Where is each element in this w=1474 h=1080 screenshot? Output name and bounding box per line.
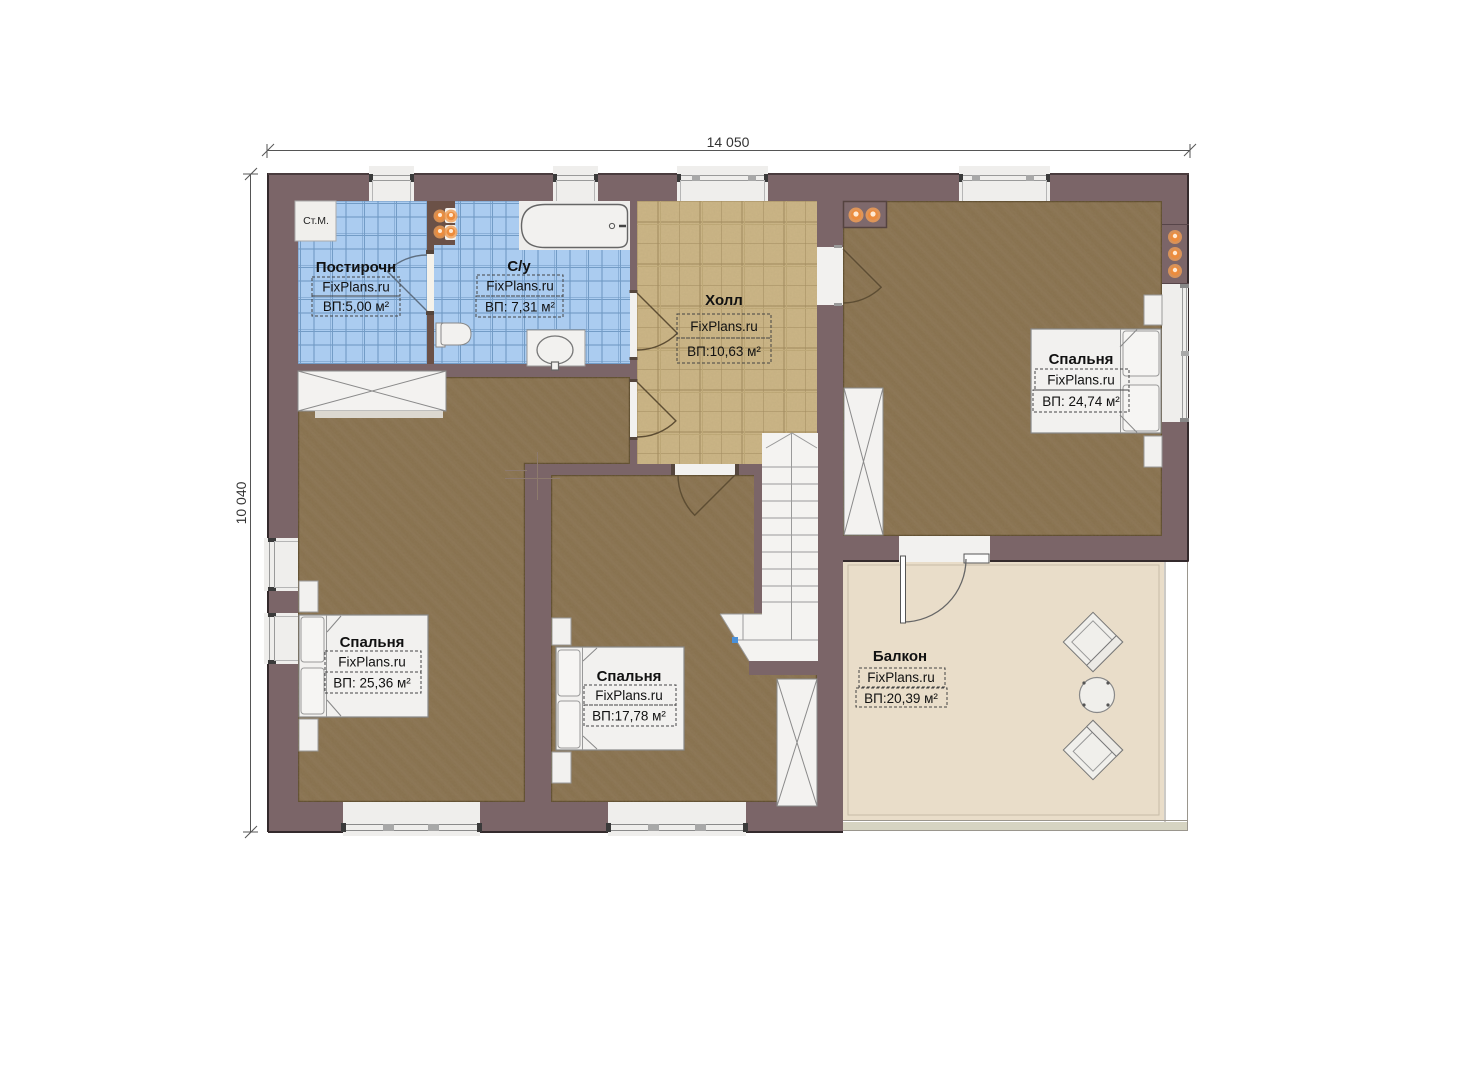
svg-text:ВП: 25,36 м²: ВП: 25,36 м² <box>333 676 411 691</box>
svg-text:ВП:20,39 м²: ВП:20,39 м² <box>864 691 938 706</box>
svg-text:FixPlans.ru: FixPlans.ru <box>486 279 554 294</box>
svg-text:Ст.М.: Ст.М. <box>303 215 329 227</box>
svg-text:FixPlans.ru: FixPlans.ru <box>322 280 390 295</box>
svg-text:ВП: 24,74 м²: ВП: 24,74 м² <box>1042 394 1120 409</box>
svg-text:FixPlans.ru: FixPlans.ru <box>338 655 406 670</box>
svg-text:10 040: 10 040 <box>233 481 249 524</box>
svg-text:ВП:17,78 м²: ВП:17,78 м² <box>592 709 666 724</box>
svg-text:С/у: С/у <box>507 258 531 275</box>
svg-text:FixPlans.ru: FixPlans.ru <box>595 688 663 703</box>
svg-text:14 050: 14 050 <box>707 134 750 150</box>
svg-text:Холл: Холл <box>705 292 743 309</box>
svg-text:FixPlans.ru: FixPlans.ru <box>867 670 935 685</box>
svg-text:ВП:10,63 м²: ВП:10,63 м² <box>687 344 761 359</box>
svg-text:ВП:5,00 м²: ВП:5,00 м² <box>323 299 390 314</box>
svg-text:Балкон: Балкон <box>873 648 927 665</box>
svg-text:ВП: 7,31 м²: ВП: 7,31 м² <box>485 300 556 315</box>
svg-text:Спальня: Спальня <box>597 668 662 685</box>
svg-text:FixPlans.ru: FixPlans.ru <box>690 319 758 334</box>
svg-text:Постирочн: Постирочн <box>316 259 396 276</box>
svg-text:FixPlans.ru: FixPlans.ru <box>1047 373 1115 388</box>
svg-text:Спальня: Спальня <box>1049 351 1114 368</box>
svg-text:Спальня: Спальня <box>340 634 405 651</box>
